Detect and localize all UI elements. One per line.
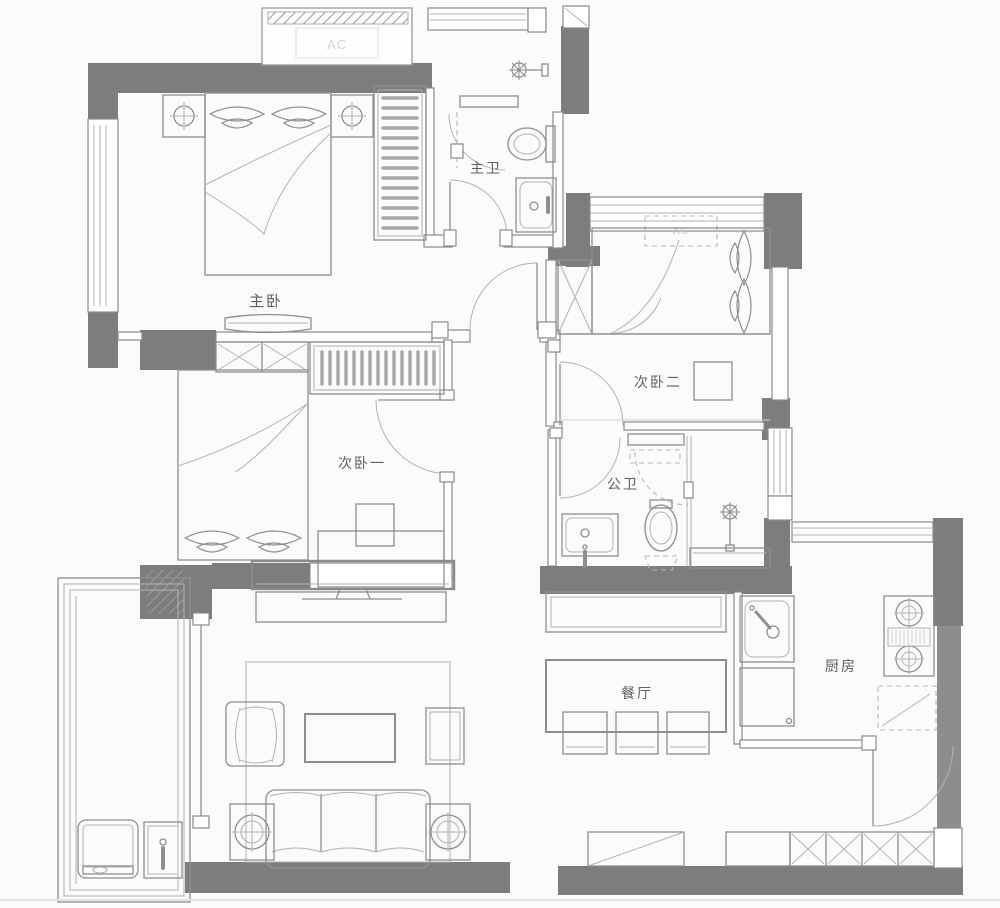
chair-bedroom-one xyxy=(356,504,394,546)
nightstand-bedroom-two xyxy=(694,362,732,400)
sofa-side-stool-right xyxy=(426,804,470,860)
room-label-kitchen: 厨房 xyxy=(825,658,857,674)
coffee-table xyxy=(305,714,395,762)
room-label-master-bedroom: 主卧 xyxy=(249,293,283,310)
sofa-side-stool-left xyxy=(230,804,274,860)
wardrobe-bedroom-two xyxy=(558,260,592,334)
room-label-dining-room: 餐厅 xyxy=(621,685,653,701)
dining-bench xyxy=(546,592,726,632)
room-label-master-bathroom: 主卫 xyxy=(470,160,502,176)
shower-stall xyxy=(684,436,770,568)
bedroom-one-furniture xyxy=(178,342,444,587)
side-table xyxy=(426,708,464,764)
toilet-shared xyxy=(645,500,678,570)
bay-window-master xyxy=(88,119,118,312)
partition-walls xyxy=(118,6,873,748)
bedroom-two-door xyxy=(548,340,623,425)
floor-plan: AC xyxy=(0,0,1000,908)
laundry-sink xyxy=(144,822,182,878)
nightstand-left xyxy=(163,95,205,137)
bath-shelf xyxy=(460,96,518,107)
bedroom-one-door xyxy=(376,390,454,482)
tv-cabinet xyxy=(256,592,446,622)
master-bath-fixtures xyxy=(451,60,556,232)
balcony-slider-track xyxy=(193,613,209,828)
living-room-furniture xyxy=(78,561,470,878)
sofa xyxy=(266,790,430,868)
master-bedroom-door xyxy=(432,263,556,338)
washing-machine xyxy=(78,820,138,878)
toilet-master xyxy=(508,126,555,162)
master-bedroom-furniture xyxy=(163,86,426,333)
bed-end-bench xyxy=(225,315,311,333)
stove xyxy=(884,596,934,676)
master-wardrobe-rack xyxy=(374,86,426,240)
shower-head-master xyxy=(509,60,548,80)
window-right-side xyxy=(768,428,792,520)
kitchen-cabinet xyxy=(740,668,794,726)
room-label-bedroom-one: 次卧一 xyxy=(338,455,386,471)
towel-bar xyxy=(628,434,684,445)
armchair xyxy=(226,702,284,766)
sink-shared xyxy=(562,514,618,566)
bed-two xyxy=(592,228,770,334)
mirror-dashed xyxy=(630,450,680,463)
cabinet-diagonal xyxy=(588,832,684,866)
ac-label-top: AC xyxy=(327,37,347,52)
nightstand-right xyxy=(331,95,373,137)
rack-bedroom-one xyxy=(310,342,444,394)
windows: AC xyxy=(58,8,933,902)
kitchen-prep-cabinet xyxy=(878,686,936,730)
closet-bedroom-one xyxy=(216,342,308,372)
entry-cabinets xyxy=(588,832,934,866)
kitchen-sink xyxy=(740,596,794,662)
shoe-cabinet-x xyxy=(790,832,934,866)
master-bed xyxy=(205,93,331,275)
floor-plan-drawing: AC xyxy=(0,0,1000,908)
window-master-bath xyxy=(428,8,546,32)
ac-platform: AC xyxy=(262,8,412,65)
shower-glass-door xyxy=(635,452,688,505)
room-label-shared-bathroom: 公卫 xyxy=(607,476,639,492)
bed-one xyxy=(178,370,308,560)
master-bath-door xyxy=(444,180,512,246)
room-label-bedroom-two: 次卧二 xyxy=(634,374,682,390)
walls xyxy=(88,26,963,895)
dining-furniture xyxy=(546,592,726,754)
window-kitchen xyxy=(792,522,933,542)
sink-master xyxy=(516,178,556,232)
shared-bath-fixtures xyxy=(562,434,770,570)
cabinet-plain xyxy=(726,832,790,866)
